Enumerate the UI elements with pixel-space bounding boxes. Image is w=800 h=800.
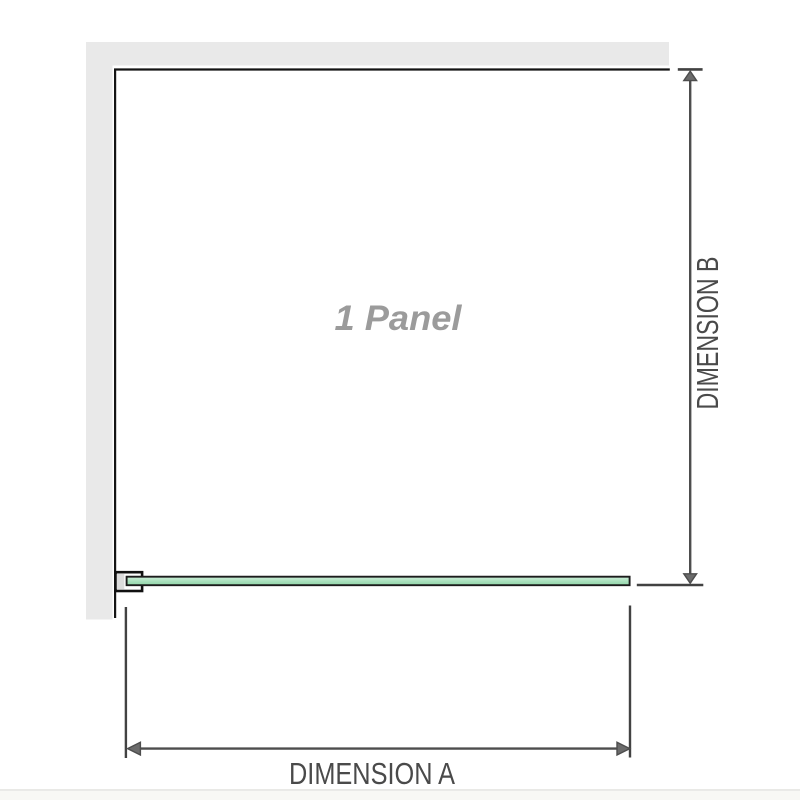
svg-text:DIMENSION B: DIMENSION B — [691, 257, 725, 410]
svg-text:DIMENSION A: DIMENSION A — [289, 757, 456, 791]
svg-text:1 Panel: 1 Panel — [335, 299, 463, 338]
